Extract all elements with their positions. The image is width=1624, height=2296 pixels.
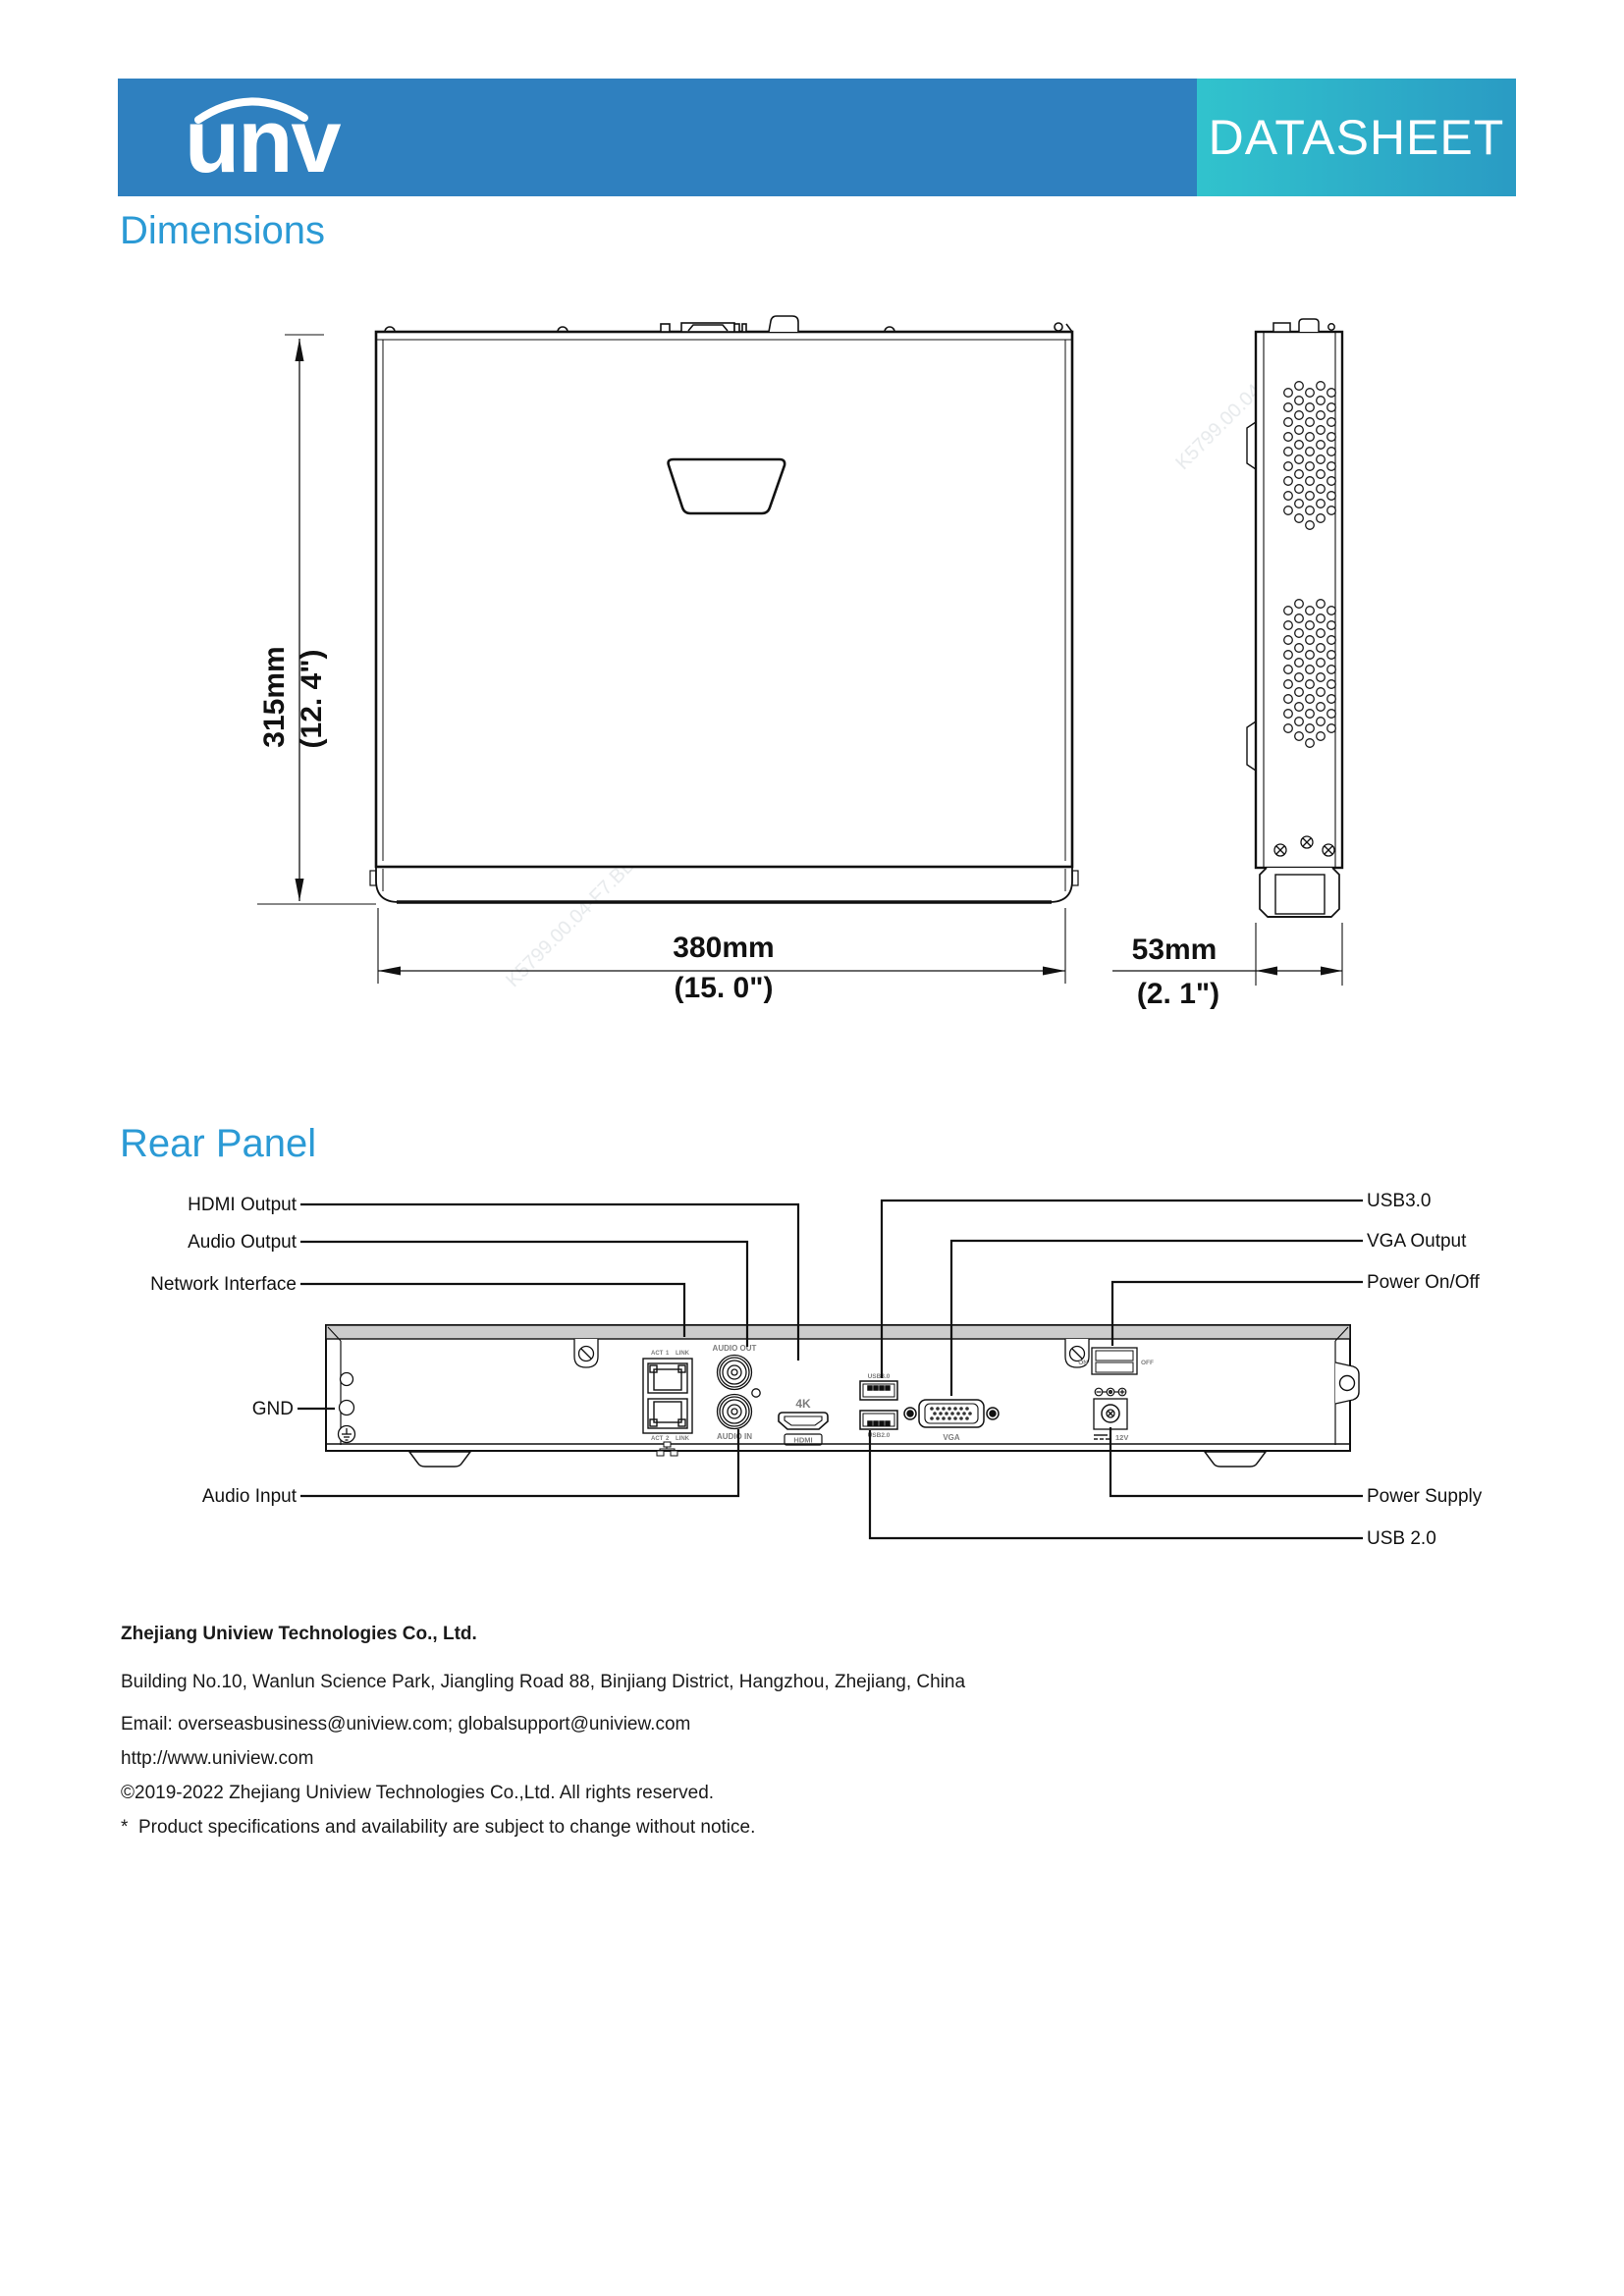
off-label: OFF: [1141, 1360, 1154, 1366]
top-edge-connectors-icon: [385, 316, 1072, 332]
front-band-icon: [370, 867, 1078, 902]
callout-gnd: GND: [252, 1399, 294, 1419]
callout-audio-input: Audio Input: [202, 1486, 298, 1507]
callout-usb2: USB 2.0: [1367, 1528, 1436, 1549]
handle-recess-icon: [669, 459, 785, 513]
height-dimension: 315mm (12. 4"): [257, 335, 376, 904]
v12-label: 12V: [1115, 1433, 1128, 1442]
polarity-icon: [1095, 1388, 1126, 1396]
width-dimension: 380mm (15. 0"): [378, 908, 1065, 1004]
usb3-label: USB3.0: [868, 1373, 891, 1380]
hdmi-port-icon: [779, 1413, 828, 1429]
act1-label: ACT: [651, 1351, 664, 1357]
fourk-label: 4K: [795, 1397, 811, 1411]
mounting-ear-icon: [1335, 1362, 1359, 1404]
act2-label: ACT: [651, 1436, 664, 1442]
height-mm-label: 315mm: [258, 646, 291, 747]
top-rail: [326, 1325, 1350, 1339]
depth-in-label: (2. 1"): [1137, 978, 1219, 1010]
width-in-label: (15. 0"): [675, 972, 774, 1004]
dc-jack-icon: [1094, 1399, 1127, 1429]
callout-vga-output: VGA Output: [1367, 1231, 1467, 1252]
callout-network-interface: Network Interface: [150, 1274, 297, 1295]
callout-power-onoff: Power On/Off: [1367, 1272, 1480, 1293]
hdmi-label: HDMI: [793, 1436, 812, 1445]
footer-email: Email: overseasbusiness@uniview.com; glo…: [121, 1714, 690, 1735]
footer-company: Zhejiang Uniview Technologies Co., Ltd.: [121, 1624, 477, 1645]
rj45-port-icon: [643, 1359, 692, 1433]
technical-drawings: K5799.00.04-F7.BB K5799.00.04-F7.BB K579…: [0, 0, 1624, 2296]
width-mm-label: 380mm: [673, 932, 774, 964]
callout-power-supply: Power Supply: [1367, 1486, 1483, 1507]
footer-address: Building No.10, Wanlun Science Park, Jia…: [121, 1672, 965, 1693]
callout-hdmi-output: HDMI Output: [188, 1195, 298, 1215]
footer-note: * Product specifications and availabilit…: [121, 1817, 755, 1839]
footer-copyright: ©2019-2022 Zhejiang Uniview Technologies…: [121, 1783, 714, 1804]
audio-in-label: AUDIO IN: [717, 1432, 752, 1441]
link1-label: LINK: [676, 1351, 690, 1357]
callout-usb3: USB3.0: [1367, 1191, 1431, 1211]
footer-website: http://www.uniview.com: [121, 1748, 313, 1770]
audio-out-label: AUDIO OUT: [713, 1344, 757, 1353]
top-view-drawing: 315mm (12. 4") 380mm (15. 0"): [257, 316, 1078, 1004]
depth-dimension: 53mm (2. 1"): [1112, 923, 1342, 1010]
callout-audio-output: Audio Output: [188, 1232, 298, 1253]
foot-bracket-icon: [1260, 868, 1339, 917]
side-top-parts-icon: [1273, 319, 1334, 332]
height-in-label: (12. 4"): [296, 650, 328, 749]
rear-panel-drawing: ACT 1 LINK ACT 2 LINK AUDIO OUT AUDIO IN…: [326, 1325, 1359, 1467]
power-switch-icon: [1092, 1348, 1137, 1374]
datasheet-page: unv DATASHEET Dimensions Rear Panel K579…: [0, 0, 1624, 2296]
depth-mm-label: 53mm: [1132, 934, 1218, 966]
on-label: ON: [1078, 1360, 1088, 1366]
vga-label: VGA: [943, 1433, 960, 1442]
foot-icon: [409, 1452, 1266, 1467]
link2-label: LINK: [676, 1436, 690, 1442]
